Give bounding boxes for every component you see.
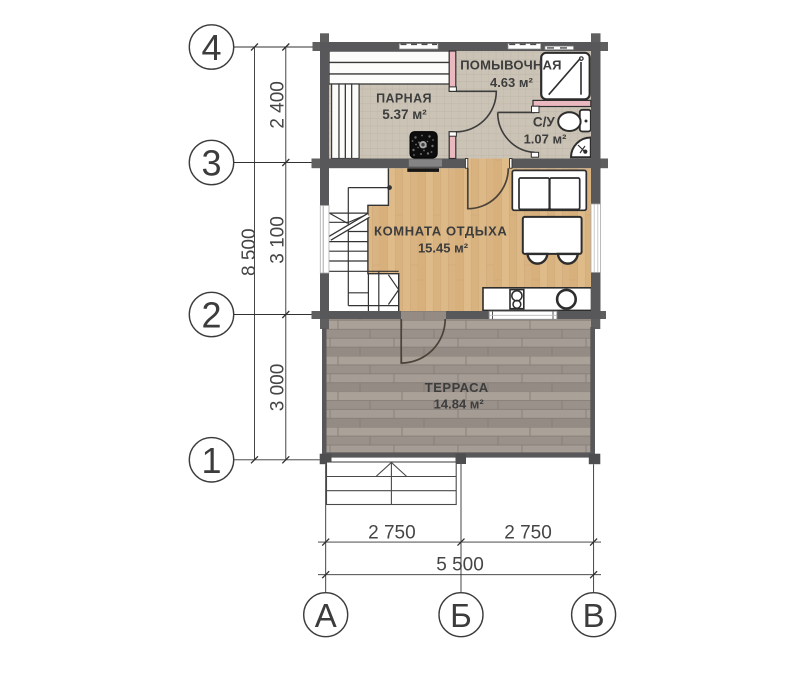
svg-text:3 000: 3 000 xyxy=(268,364,289,412)
svg-text:ПАРНАЯ: ПАРНАЯ xyxy=(376,91,432,105)
svg-text:1: 1 xyxy=(201,440,221,481)
svg-text:2: 2 xyxy=(201,295,221,336)
svg-text:4.63 м²: 4.63 м² xyxy=(490,75,534,90)
svg-text:В: В xyxy=(583,597,605,634)
svg-text:8 500: 8 500 xyxy=(239,228,260,276)
svg-text:4: 4 xyxy=(201,27,221,68)
svg-text:2 400: 2 400 xyxy=(268,81,289,129)
svg-text:2 750: 2 750 xyxy=(368,523,416,544)
svg-text:5 500: 5 500 xyxy=(436,554,484,575)
svg-text:С/У: С/У xyxy=(533,115,556,130)
svg-text:2 750: 2 750 xyxy=(504,523,552,544)
svg-text:3: 3 xyxy=(201,143,221,184)
svg-text:ПОМЫВОЧНАЯ: ПОМЫВОЧНАЯ xyxy=(460,58,561,73)
svg-text:1.07 м²: 1.07 м² xyxy=(524,131,568,146)
svg-text:3 100: 3 100 xyxy=(268,216,289,264)
svg-text:14.84 м²: 14.84 м² xyxy=(434,397,485,412)
svg-text:А: А xyxy=(315,597,337,634)
svg-text:5.37 м²: 5.37 м² xyxy=(382,107,427,122)
svg-text:ТЕРРАСА: ТЕРРАСА xyxy=(425,380,489,395)
svg-text:Б: Б xyxy=(450,597,472,634)
svg-text:15.45 м²: 15.45 м² xyxy=(418,240,469,255)
svg-text:КОМНАТА ОТДЫХА: КОМНАТА ОТДЫХА xyxy=(374,224,507,239)
